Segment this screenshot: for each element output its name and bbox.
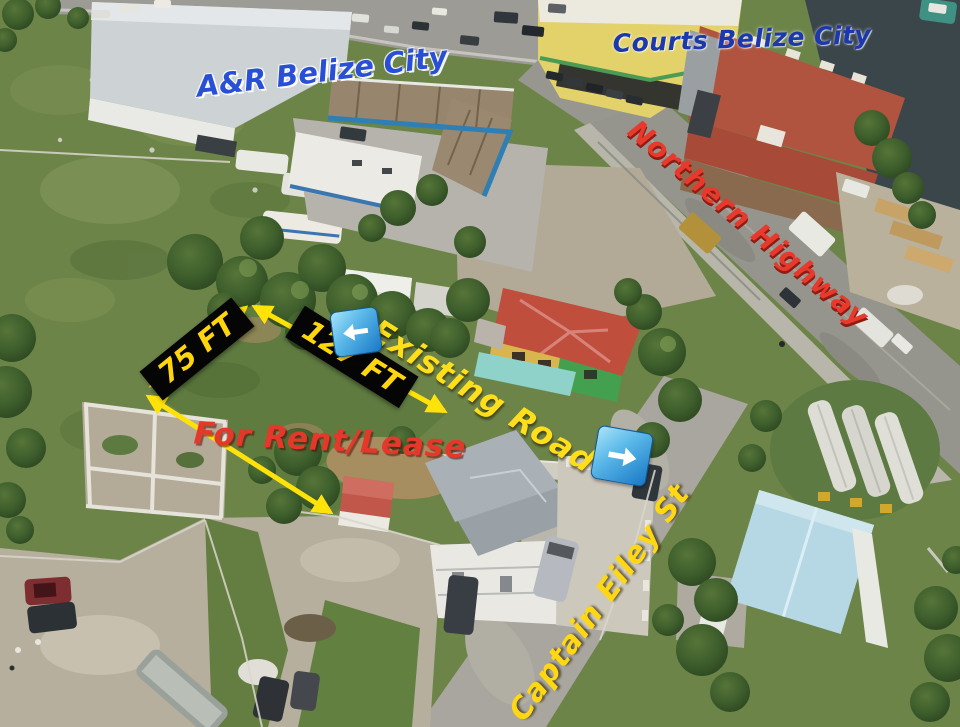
direction-arrow-right-icon (590, 425, 655, 488)
dimension-arrows (0, 0, 960, 727)
left-arrow-glyph (338, 318, 373, 346)
aerial-photo-stage: Courts Belize City A&R Belize City North… (0, 0, 960, 727)
direction-arrow-left-icon (329, 306, 383, 358)
right-arrow-glyph (602, 440, 642, 473)
